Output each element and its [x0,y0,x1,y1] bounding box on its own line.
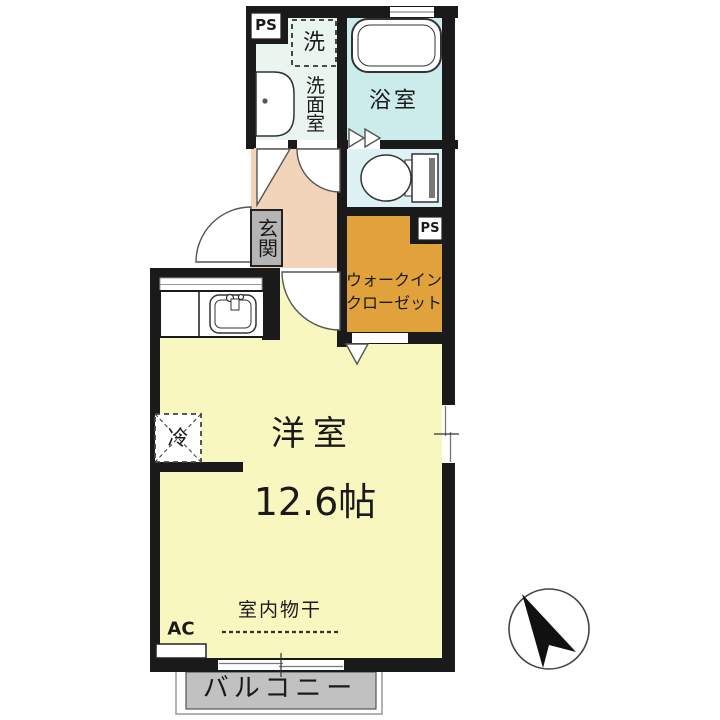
walk-in-closet-label-line2: クローゼット [346,296,442,313]
north-arrow-icon [509,589,589,669]
washroom-label: 洗面室 [303,76,323,133]
floorplan-page: PS 洗 洗面室 浴室 玄関 ウォークイン クローゼット PS 冷 洋室 12.… [0,0,720,720]
entrance-door-swing [196,207,251,262]
ps-top-label: PS [255,18,277,34]
sink-faucet-spout [231,299,239,310]
closet-opening [352,333,408,343]
fridge-label: 冷 [168,427,189,449]
wall-segment [150,462,243,472]
bathroom-label: 浴室 [369,89,419,112]
wall-segment [343,207,442,216]
toilet-tank-detail [429,158,435,198]
ac-unit [156,644,206,658]
wall-segment [337,16,347,140]
toilet-bowl [361,155,411,201]
wall-segment [288,140,297,149]
washer-label: 洗 [303,31,325,54]
ac-label: AC [167,621,194,640]
washbasin [256,72,294,136]
walk-in-closet-label-line1: ウォークイン [346,273,442,290]
genkan-label: 玄関 [256,218,277,258]
bathtub [352,19,441,72]
floorplan-drawing [0,0,720,720]
main-room-label: 洋室 [271,417,355,453]
indoor-drying-label: 室内物干 [238,601,322,621]
room-size-label: 12.6帖 [254,483,377,523]
balcony-label: バルコニー [203,675,357,702]
compass-needle [522,594,576,668]
wall-segment [246,140,254,149]
washbasin-faucet [262,98,267,103]
ps-closet-label: PS [421,222,440,236]
